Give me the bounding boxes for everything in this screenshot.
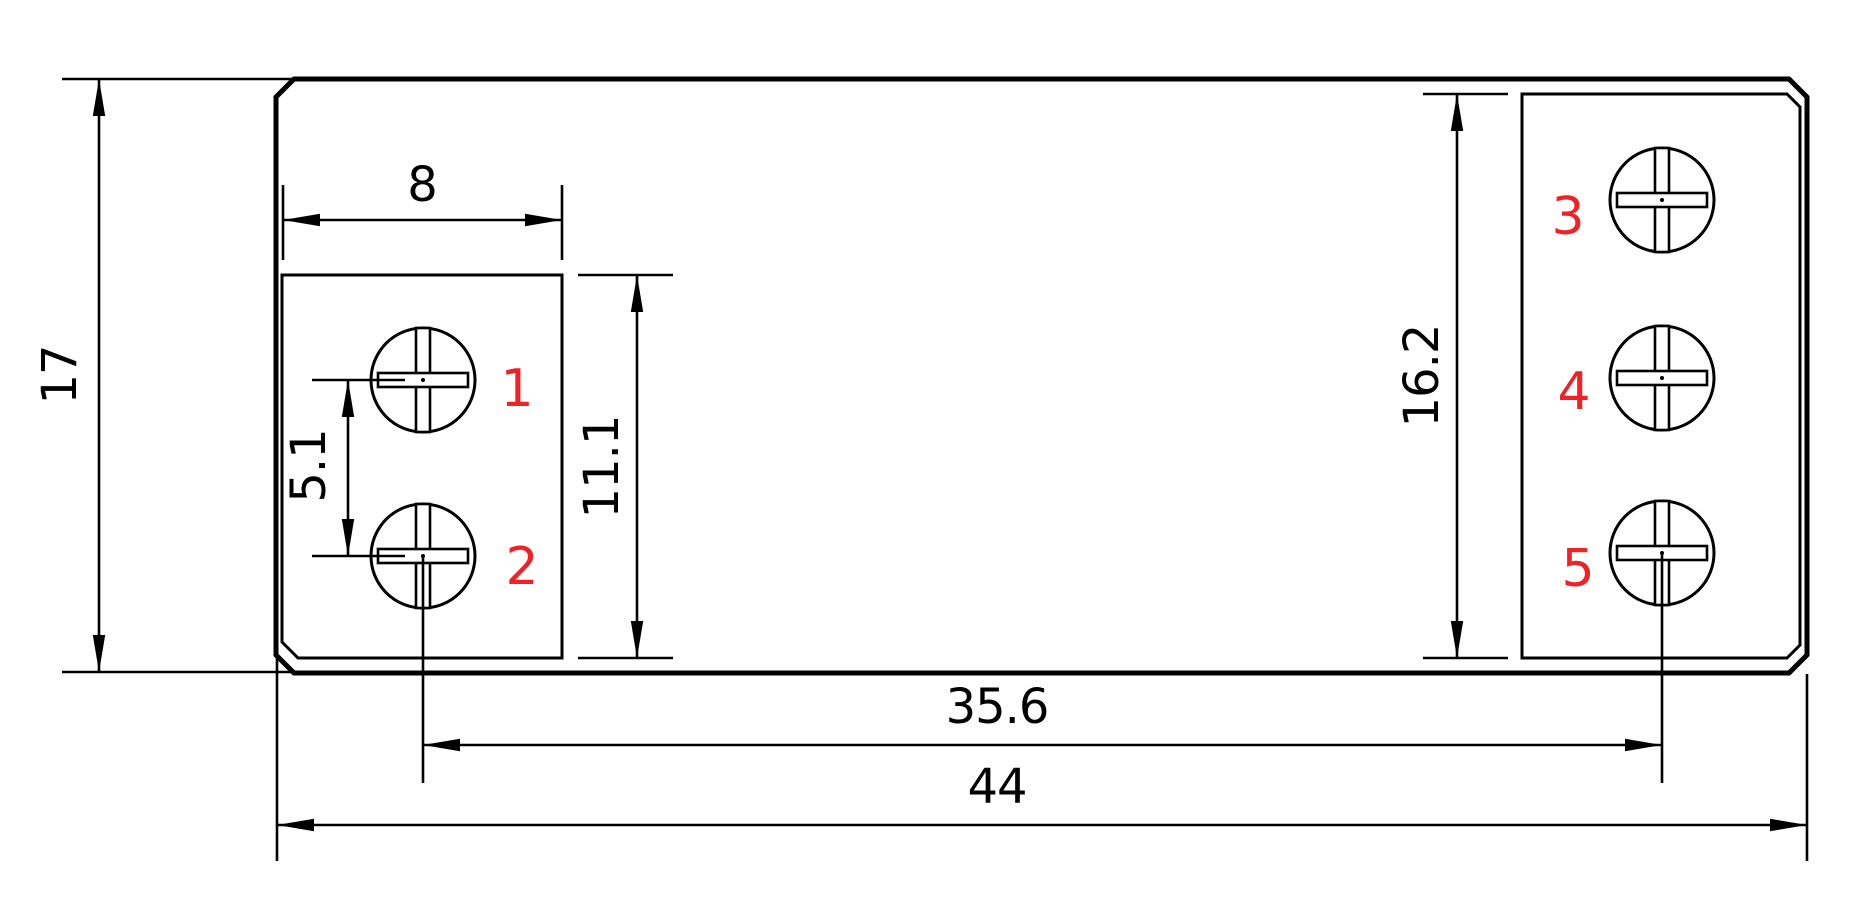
technical-drawing: 17 8 5.1 11.1 16.2 35.6 44	[0, 0, 1866, 901]
drawing-canvas: 17 8 5.1 11.1 16.2 35.6 44	[0, 0, 1866, 901]
screw-label-5: 5	[1561, 539, 1594, 599]
screw-4	[1610, 326, 1714, 430]
dimension-right-block-height: 16.2	[1394, 94, 1508, 658]
dimension-left-block-width: 8	[283, 157, 562, 260]
dimension-value: 17	[32, 345, 88, 404]
dimension-value: 35.6	[946, 679, 1049, 735]
screw-label-2: 2	[505, 537, 538, 597]
dimension-value: 5.1	[281, 429, 337, 502]
dimension-value: 8	[407, 157, 437, 213]
screw-center-dot	[1660, 376, 1664, 380]
dimension-left-block-height: 11.1	[574, 275, 673, 658]
dimension-value: 16.2	[1394, 325, 1450, 428]
screw-label-1: 1	[500, 359, 533, 419]
dimension-screw-span: 35.6	[423, 553, 1662, 783]
screw-center-dot	[1660, 198, 1664, 202]
screw-center-dot	[421, 378, 425, 382]
dimension-value: 44	[967, 759, 1026, 815]
screw-label-3: 3	[1551, 187, 1584, 247]
dimension-value: 11.1	[574, 416, 630, 519]
screw-label-4: 4	[1557, 362, 1590, 422]
dimension-overall-height: 17	[32, 79, 294, 672]
screw-3	[1610, 148, 1714, 252]
